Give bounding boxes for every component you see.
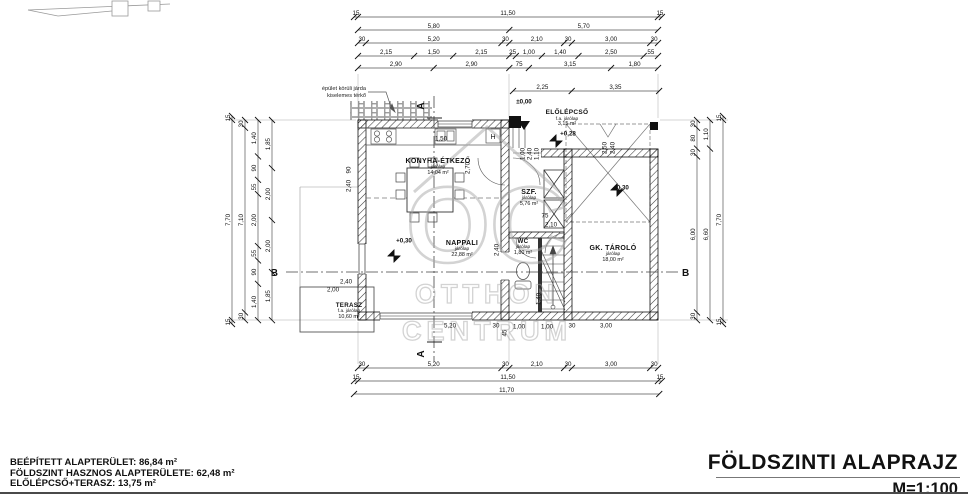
inline-dim: 30 — [493, 323, 500, 330]
inline-dim: 2,40 — [340, 279, 352, 286]
room-label-hall: SZF.járólap5,76 m² — [520, 189, 538, 207]
room-label-kitchen: KONYHA-ÉTKEZŐjárólap14,04 m² — [406, 158, 471, 176]
scale-block: M=1:100 — [892, 478, 958, 497]
dim-label: 55 — [251, 249, 258, 256]
dim-label: 30 — [651, 36, 658, 43]
dim-label: 7,70 — [225, 213, 232, 226]
dim-label: 2,00 — [265, 240, 272, 253]
inline-dim: 1,00 — [513, 324, 525, 331]
dim-label: 1,85 — [265, 290, 272, 303]
inline-dim: 2,50 — [602, 142, 609, 154]
dim-label: 55 — [647, 49, 654, 56]
dim-label: 15 — [656, 374, 663, 381]
room-label-wc: WCjárólap1,80 m² — [514, 239, 532, 256]
inline-dim: 1,40 — [536, 293, 543, 305]
dim-label: 15 — [716, 114, 723, 121]
dim-label: 2,90 — [390, 61, 403, 68]
inline-dim: 3,00 — [600, 323, 612, 330]
dim-label: 1,85 — [265, 137, 272, 150]
roof-canopy — [566, 124, 650, 222]
inline-dim: 30 — [569, 323, 576, 330]
section-a-label-bottom: A — [416, 350, 427, 357]
dim-label: 15 — [353, 374, 360, 381]
dim-chain-bottom-1: 305,20302,10303,0030 — [355, 361, 661, 371]
section-b-label-right: B — [682, 268, 689, 279]
dim-label: 6,60 — [703, 228, 710, 241]
summary-stairs-terrace: ELŐLÉPCSŐ+TERASZ: 13,75 m² — [10, 479, 235, 490]
dim-label: 1,10 — [703, 128, 710, 141]
area-summary: BEÉPÍTETT ALAPTERÜLET: 86,84 m² FÖLDSZIN… — [10, 458, 235, 490]
inline-dim: 1,00 — [541, 324, 553, 331]
dim-label: 30 — [565, 361, 572, 368]
dim-label: 1,40 — [251, 295, 258, 308]
dim-label: 30 — [565, 36, 572, 43]
dim-label: 11,70 — [499, 387, 515, 394]
title-block: FÖLDSZINTI ALAPRAJZ — [708, 451, 958, 475]
dim-chain-bottom-2: 1511,5015 — [351, 374, 665, 384]
dim-label: 11,50 — [500, 374, 516, 381]
dim-chain-top-2: 5,805,70 — [355, 23, 661, 33]
dim-label: 1,50 — [428, 49, 441, 56]
inline-dim: 1,10 — [534, 148, 541, 160]
dim-label: 90 — [251, 164, 258, 171]
dim-label: 2,00 — [265, 188, 272, 201]
dim-chain-right-3: 157,7015 — [716, 113, 726, 327]
dim-chain-left-3: 1,4090552,0055901,40 — [251, 117, 261, 323]
dim-label: 5,20 — [428, 36, 441, 43]
dim-label: 3,15 — [564, 61, 577, 68]
inline-dim: 5,20 — [444, 323, 456, 330]
dim-chain-right-1: 3080306,0030 — [690, 117, 700, 323]
dim-chain-top-4: 2,151,502,15251,001,402,5055 — [355, 49, 661, 59]
dim-label: 15 — [353, 10, 360, 17]
dim-label: 15 — [656, 10, 663, 17]
dim-label: 2,15 — [475, 49, 488, 56]
dim-label: 1,80 — [629, 61, 642, 68]
inline-dim: 1,50 — [435, 136, 447, 143]
dim-label: 1,40 — [251, 132, 258, 145]
dim-chain-top-1: 1511,5015 — [351, 10, 665, 20]
summary-built-area: BEÉPÍTETT ALAPTERÜLET: 86,84 m² — [10, 458, 235, 469]
sidewalk-note: épület körüli járdakiselemes térkő — [294, 86, 366, 100]
dim-label: 2,90 — [465, 61, 478, 68]
porch-pillar — [650, 122, 658, 130]
dim-label: 55 — [251, 183, 258, 190]
dim-label: 3,35 — [609, 84, 622, 91]
dim-label: 7,70 — [716, 213, 723, 226]
floor-plan-drawing: A A B B H OC OTTHON CENTRUM 1511,50155,8… — [0, 0, 968, 500]
dim-label: 30 — [690, 120, 697, 127]
dim-label: 80 — [690, 134, 697, 141]
dim-label: 30 — [238, 120, 245, 127]
room-label-living: NAPPALIjárólap22,88 m² — [446, 240, 478, 258]
level-porch: +0,28 — [560, 131, 576, 138]
dim-label: 30 — [238, 312, 245, 319]
entry-steps — [513, 128, 525, 148]
dim-chain-left-2: 307,1030 — [238, 117, 248, 323]
room-label-front-stairs: ELŐLÉPCSŐf.a. járólap3,15 m² — [546, 110, 589, 128]
drawing-title: FÖLDSZINTI ALAPRAJZ — [708, 451, 958, 475]
dim-label: 30 — [690, 149, 697, 156]
section-a-label-top: A — [416, 102, 427, 109]
dim-label: 5,80 — [428, 23, 441, 30]
dim-label: 3,00 — [605, 361, 618, 368]
inline-dim: 45 — [502, 330, 509, 337]
level-living: +0,30 — [396, 238, 412, 245]
inline-dim: 75 — [542, 213, 549, 220]
dim-label: 2,10 — [531, 36, 544, 43]
floor-plan-page: A A B B H OC OTTHON CENTRUM 1511,50155,8… — [0, 0, 968, 500]
dim-label: 2,00 — [251, 214, 258, 227]
dim-label: 15 — [225, 114, 232, 121]
dim-label: 30 — [502, 36, 509, 43]
dim-label: 5,20 — [428, 361, 441, 368]
inline-dim: 90 — [346, 167, 353, 174]
dim-chain-left-4: 1,852,002,001,85 — [265, 117, 275, 323]
dim-label: 30 — [651, 361, 658, 368]
dim-chain-right-2: 1,106,60 — [703, 117, 713, 323]
watermark-oc: OC — [406, 164, 568, 285]
dim-label: 75 — [516, 61, 523, 68]
dim-label: 25 — [509, 49, 516, 56]
dim-label: 11,50 — [500, 10, 516, 17]
inline-dim: 2,10 — [545, 222, 557, 229]
kitchen-counter — [366, 128, 501, 145]
dim-chain-porch: 2,253,35 — [510, 84, 662, 94]
dim-chain-top-5: 2,902,90753,151,80 — [355, 61, 661, 71]
dim-chain-left-1: 157,7015 — [225, 113, 235, 327]
inline-dim: 2,40 — [346, 180, 353, 192]
inline-dim: 2,40 — [494, 244, 501, 256]
dim-label: 30 — [502, 361, 509, 368]
inline-dim: 2,70 — [465, 162, 472, 174]
inline-dim: 2,40 — [610, 142, 617, 154]
dim-label: 15 — [225, 318, 232, 325]
dim-label: 2,25 — [536, 84, 549, 91]
dim-label: 15 — [716, 318, 723, 325]
room-label-storage: GK. TÁROLÓjárólap18,00 m² — [590, 245, 637, 263]
dim-label: 3,00 — [605, 36, 618, 43]
dim-chain-bottom-3: 11,70 — [351, 387, 662, 397]
level-entry: ±0,00 — [516, 99, 531, 106]
room-label-terrace: TERASZf.a. járólap10,60 m² — [336, 303, 363, 320]
dim-label: 30 — [690, 312, 697, 319]
dim-label: 2,50 — [605, 49, 618, 56]
dim-label: 7,10 — [238, 214, 245, 227]
dim-label: 6,00 — [690, 228, 697, 241]
dim-label: 1,40 — [554, 49, 567, 56]
dim-chain-top-3: 305,20302,10303,0030 — [355, 36, 661, 46]
bottom-rule — [0, 492, 968, 494]
dim-label: 2,10 — [531, 361, 544, 368]
dim-label: 2,15 — [380, 49, 393, 56]
level-garage: +0,30 — [613, 185, 629, 192]
dim-label: 1,00 — [523, 49, 536, 56]
dim-label: 5,70 — [578, 23, 591, 30]
dim-label: 30 — [358, 36, 365, 43]
dim-label: 30 — [358, 361, 365, 368]
drawing-scale: M=1:100 — [892, 481, 958, 497]
watermark-centrum: CENTRUM — [402, 316, 572, 346]
stove-icon — [371, 129, 396, 144]
corner-sketch-fragment — [28, 1, 170, 16]
inline-dim: 2,00 — [327, 287, 339, 294]
inline-dim: 1,00 — [520, 148, 527, 160]
inline-dim: 2,40 — [527, 148, 534, 160]
dim-label: 90 — [251, 268, 258, 275]
